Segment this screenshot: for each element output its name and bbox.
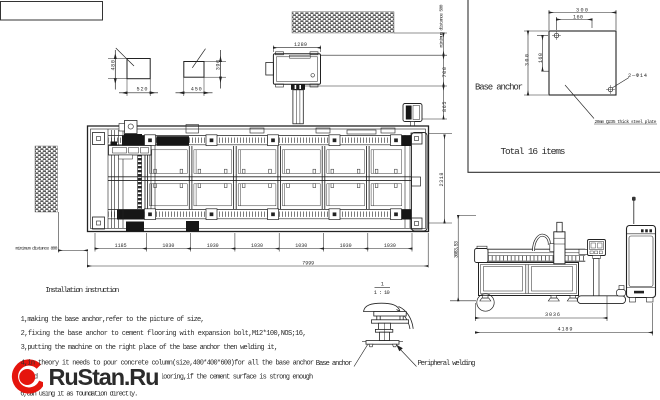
svg-text:1: 1 xyxy=(381,282,384,288)
svg-text:700: 700 xyxy=(442,67,448,78)
svg-text:3,putting the machine on the r: 3,putting the machine on the right place… xyxy=(21,344,279,352)
svg-text:1289: 1289 xyxy=(294,42,307,48)
svg-text:Base anchor: Base anchor xyxy=(316,360,353,368)
svg-text:7999: 7999 xyxy=(302,260,314,266)
svg-text:1,making the base anchor,refer: 1,making the base anchor,refer to the pi… xyxy=(21,316,205,324)
svg-text:1030: 1030 xyxy=(162,243,174,249)
svg-text:1 : 10: 1 : 10 xyxy=(374,290,390,296)
svg-text:1030: 1030 xyxy=(295,243,307,249)
svg-text:1030: 1030 xyxy=(384,243,396,249)
svg-text:Total 16 items: Total 16 items xyxy=(501,146,566,157)
svg-text:865: 865 xyxy=(442,102,448,113)
svg-text:1030: 1030 xyxy=(207,243,219,249)
svg-text:Installation instruction: Installation instruction xyxy=(45,287,119,295)
svg-text:6,can using it as foundation d: 6,can using it as foundation directly. xyxy=(20,391,138,399)
svg-text:390: 390 xyxy=(215,60,221,71)
svg-text:300: 300 xyxy=(576,8,588,14)
svg-text:1030: 1030 xyxy=(251,243,263,249)
svg-text:160: 160 xyxy=(538,53,544,63)
svg-text:2—Φ14: 2—Φ14 xyxy=(628,73,647,79)
svg-text:3036: 3036 xyxy=(545,312,560,318)
svg-text:RuStan.Ru: RuStan.Ru xyxy=(49,364,160,390)
svg-text:2,fixing the base anchor to ce: 2,fixing the base anchor to cement floor… xyxy=(21,330,307,338)
svg-text:1185: 1185 xyxy=(115,243,127,249)
svg-text:minimum distance 800: minimum distance 800 xyxy=(16,246,58,252)
svg-text:minimum distance 500: minimum distance 500 xyxy=(439,4,445,47)
svg-text:Base anchor: Base anchor xyxy=(475,83,523,93)
svg-text:300: 300 xyxy=(524,54,530,66)
svg-text:Peripheral welding: Peripheral welding xyxy=(418,360,476,368)
svg-text:4189: 4189 xyxy=(558,327,573,333)
svg-text:520: 520 xyxy=(137,87,148,93)
svg-text:450: 450 xyxy=(191,87,202,93)
svg-text:160: 160 xyxy=(573,14,583,20)
svg-text:2318: 2318 xyxy=(439,173,445,187)
svg-text:480: 480 xyxy=(111,60,117,71)
svg-text:20mm Q235 thick steel plate: 20mm Q235 thick steel plate xyxy=(595,119,657,125)
svg-text:3083,53: 3083,53 xyxy=(453,241,459,258)
svg-text:1030: 1030 xyxy=(340,243,352,249)
